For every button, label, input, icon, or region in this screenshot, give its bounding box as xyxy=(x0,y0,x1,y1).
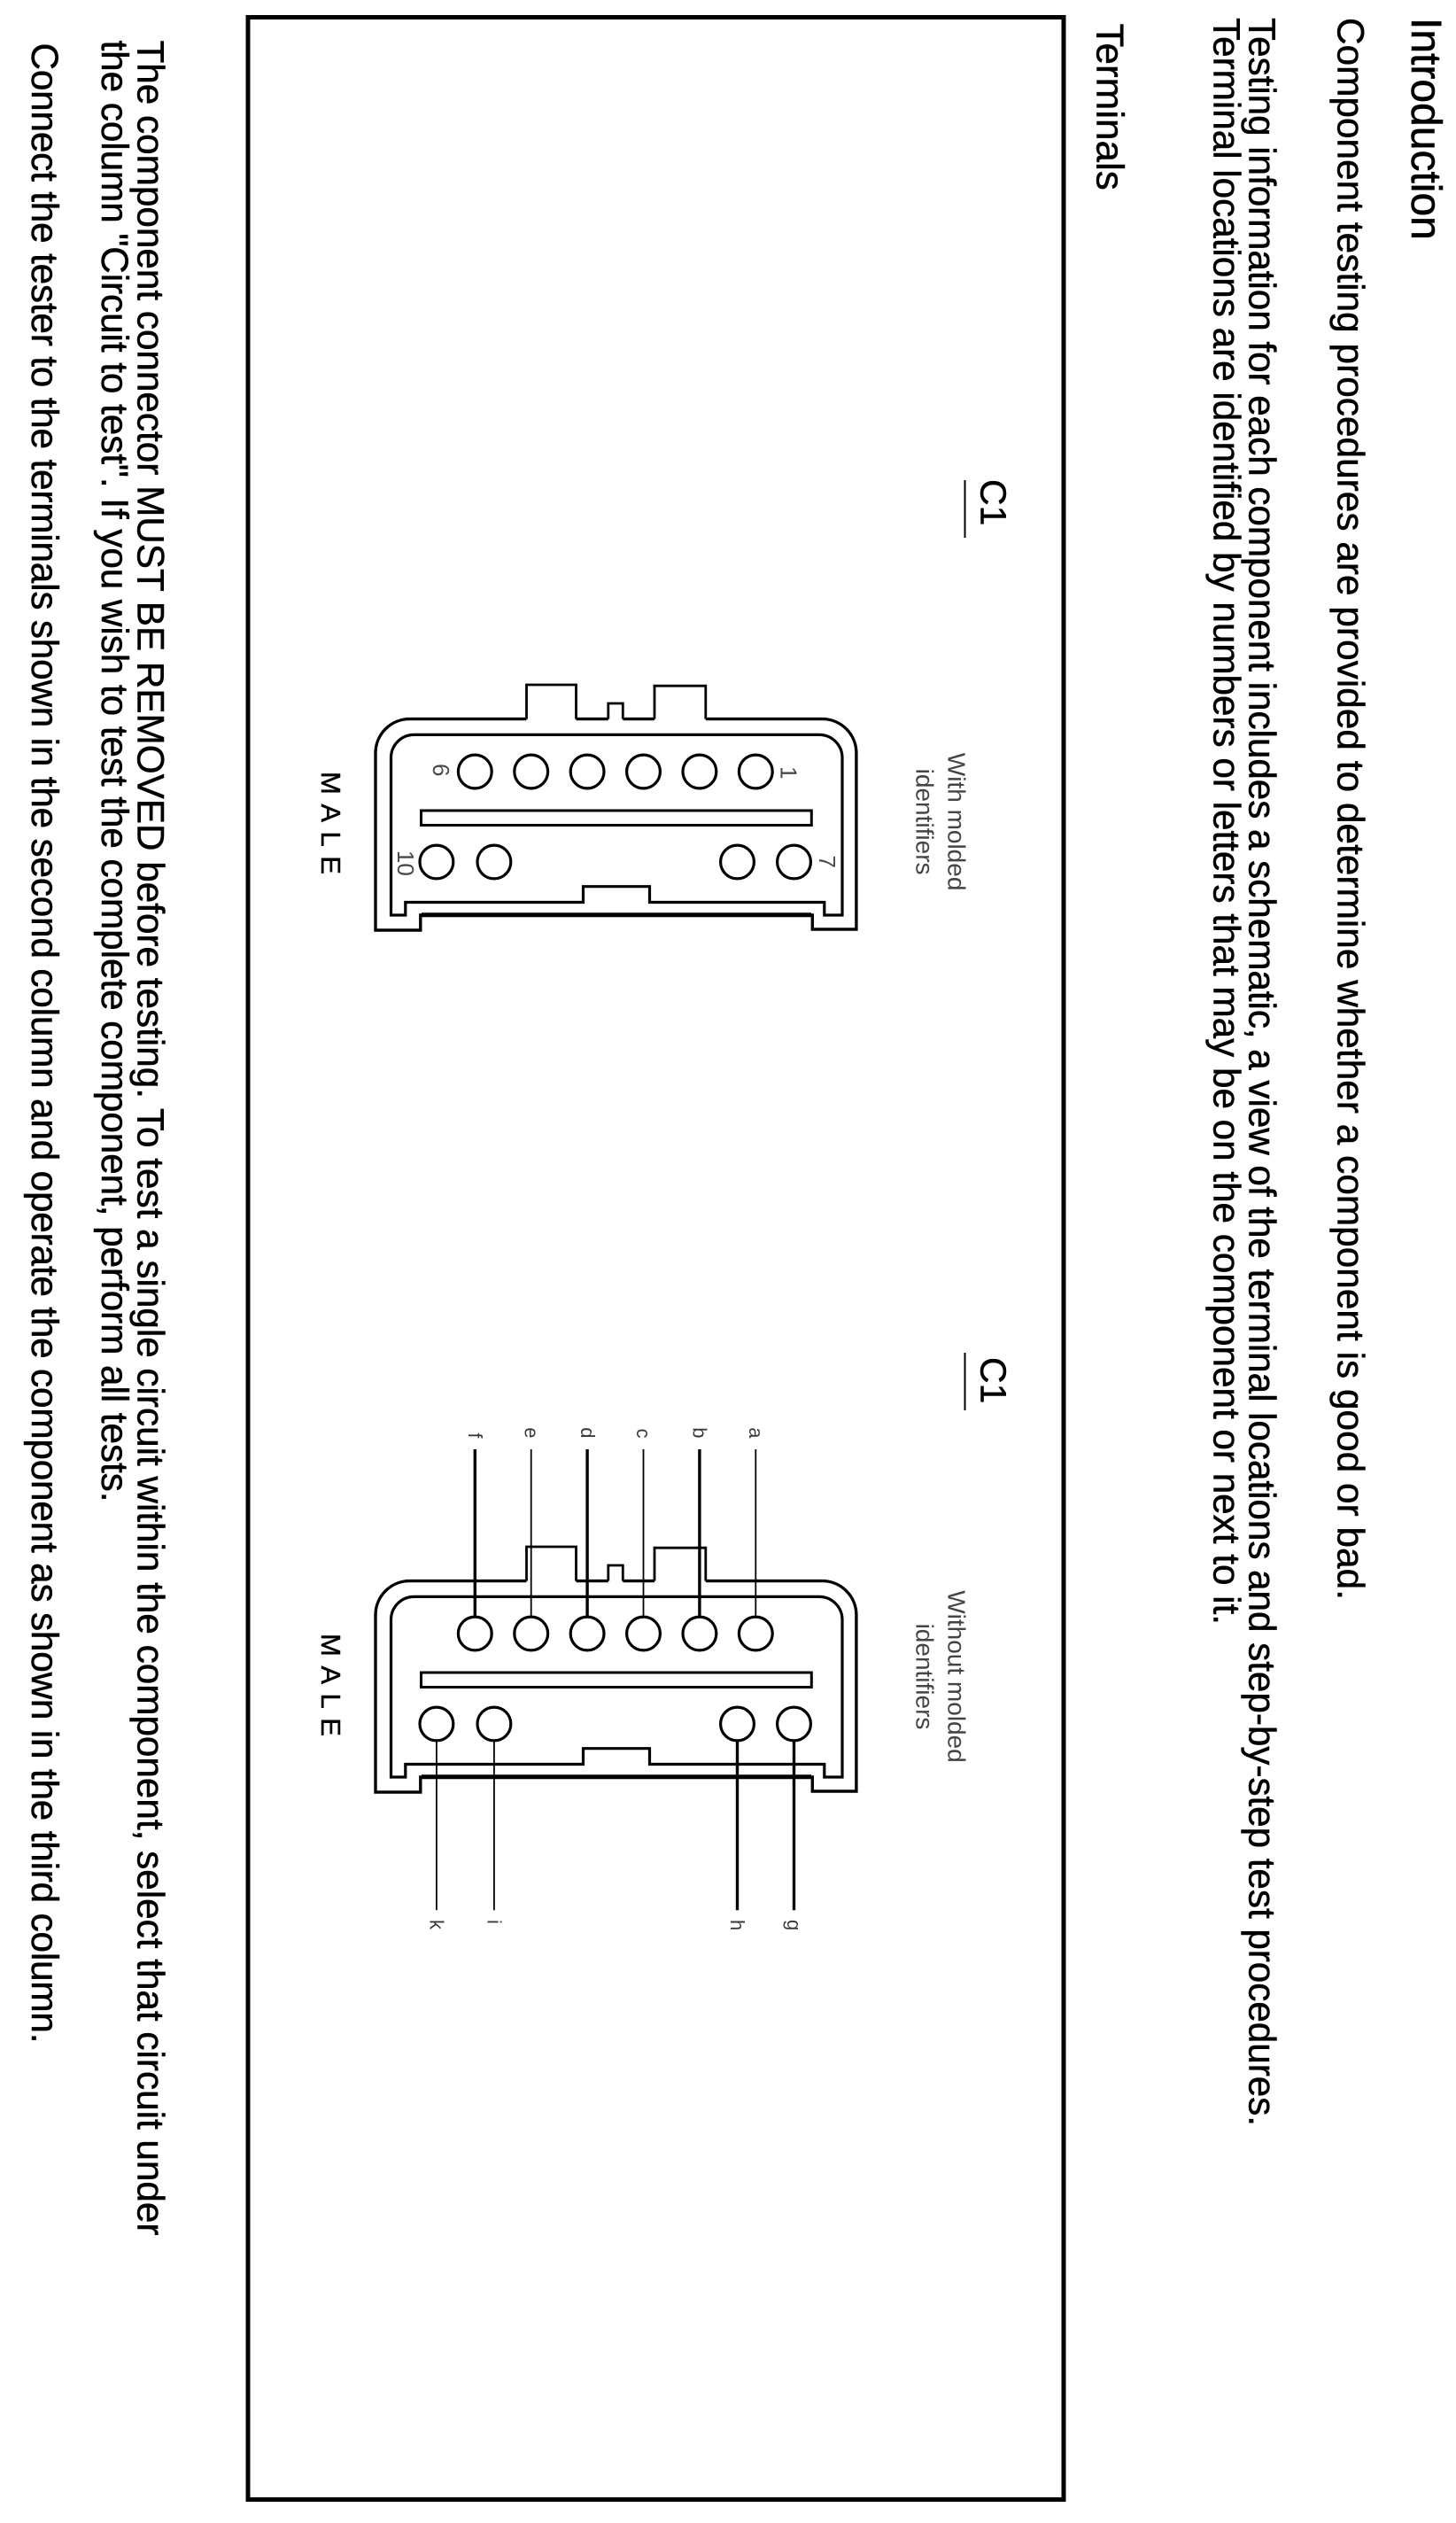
svg-text:h: h xyxy=(726,1920,748,1930)
svg-text:a: a xyxy=(745,1427,767,1439)
svg-text:With molded: With molded xyxy=(943,753,971,891)
svg-text:Without molded: Without molded xyxy=(943,1590,971,1763)
svg-text:b: b xyxy=(689,1427,711,1438)
svg-text:6: 6 xyxy=(428,764,454,776)
svg-text:g: g xyxy=(783,1920,805,1930)
svg-text:10: 10 xyxy=(392,850,419,876)
svg-text:identifiers: identifiers xyxy=(911,769,939,875)
svg-text:i: i xyxy=(484,1920,506,1924)
svg-text:MALE: MALE xyxy=(315,1634,346,1745)
svg-text:MALE: MALE xyxy=(315,772,346,883)
svg-text:d: d xyxy=(577,1427,599,1438)
svg-text:1: 1 xyxy=(776,766,802,779)
svg-text:7: 7 xyxy=(814,855,840,867)
svg-text:identifiers: identifiers xyxy=(911,1624,939,1730)
svg-text:Terminal locations are identif: Terminal locations are identified by num… xyxy=(1206,18,1248,1625)
svg-text:c: c xyxy=(632,1429,654,1439)
svg-text:C1: C1 xyxy=(973,479,1014,525)
svg-text:Terminals: Terminals xyxy=(1088,24,1132,190)
svg-text:the column "Circuit to test".: the column "Circuit to test". If you wis… xyxy=(94,41,136,1502)
svg-text:C1: C1 xyxy=(973,1357,1014,1403)
svg-text:f: f xyxy=(464,1432,486,1439)
svg-text:k: k xyxy=(426,1920,448,1930)
svg-text:Connect the tester to the term: Connect the tester to the terminals show… xyxy=(24,43,66,2044)
svg-text:Component testing procedures a: Component testing procedures are provide… xyxy=(1330,18,1372,1600)
svg-text:Introduction: Introduction xyxy=(1402,18,1449,240)
svg-text:e: e xyxy=(520,1427,542,1438)
